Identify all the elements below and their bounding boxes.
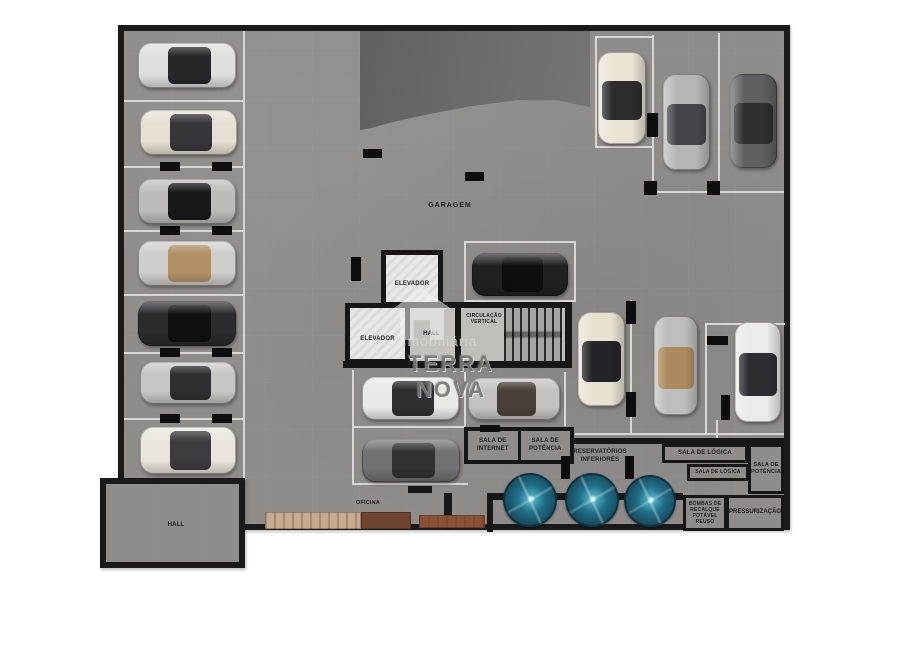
car-cabin — [168, 245, 210, 282]
car-cabin — [168, 47, 210, 84]
parking-line — [124, 100, 243, 102]
parking-line — [575, 433, 784, 435]
structural-column — [647, 113, 658, 137]
cream-car — [598, 52, 646, 144]
structural-column — [212, 348, 232, 357]
cream-car — [578, 312, 625, 406]
sala-de-logica-room-2: SALA DE LÓGICA — [687, 464, 749, 481]
car-cabin — [658, 347, 694, 390]
workbench — [419, 515, 485, 528]
structural-column — [212, 414, 232, 423]
parking-line — [595, 38, 597, 146]
sala-de-potencia-label: SALA DE POTÊNCIA — [529, 438, 562, 453]
parking-line — [464, 372, 466, 426]
structural-column — [212, 226, 232, 235]
workbench — [265, 512, 361, 529]
cream-car — [140, 110, 237, 155]
sala-de-internet-room: SALA DE INTERNET — [468, 431, 518, 460]
black-car — [138, 301, 236, 346]
structural-column — [465, 172, 484, 181]
pressurizacao-room: PRESSURIZAÇÃO — [726, 495, 784, 531]
parking-line — [595, 146, 654, 148]
structural-column — [160, 348, 180, 357]
structural-column — [351, 257, 361, 281]
floor-plan-canvas: GARAGEM HALL CIRCULAÇÃO VERTICAL ELEVADO… — [0, 0, 900, 665]
structural-column — [707, 181, 720, 195]
black-suv — [472, 253, 568, 296]
structural-column — [707, 336, 728, 345]
structural-column — [160, 162, 180, 171]
car-cabin — [582, 341, 621, 381]
sala-de-logica-label: SALA DE LÓGICA — [678, 450, 732, 458]
car-cabin — [667, 104, 706, 145]
structural-column — [160, 226, 180, 235]
parking-line — [352, 370, 354, 428]
parking-line — [124, 294, 243, 296]
silver-car — [663, 74, 710, 170]
car-cabin — [739, 353, 777, 396]
water-tank — [503, 473, 557, 527]
reservatorios-inferiores-label: RESERVATÓRIOS INFERIORES — [558, 449, 642, 464]
convertible-car — [654, 316, 698, 415]
parking-line — [352, 428, 354, 485]
bombas-de-recalque-room: BOMBAS DE RECALQUE POTÁVEL REUSO — [683, 495, 727, 531]
convertible-car — [138, 241, 236, 286]
car-cabin — [168, 183, 210, 220]
water-tank — [624, 475, 676, 527]
elevator-label: ELEVADOR — [395, 281, 430, 289]
structural-column — [212, 162, 232, 171]
circulacao-vertical-label: CIRCULAÇÃO VERTICAL — [463, 313, 505, 326]
car-cabin — [392, 443, 434, 478]
hall-floor: HALL — [408, 308, 455, 361]
hall-annex-label: HALL — [146, 522, 206, 530]
elevator-lower: ELEVADOR — [345, 303, 410, 364]
gray-car — [362, 439, 460, 482]
wall-segment — [408, 486, 432, 493]
structural-column — [626, 392, 636, 417]
car-cabin — [170, 366, 211, 400]
elevator-upper: ELEVADOR — [381, 250, 443, 307]
structural-column — [721, 395, 730, 420]
parking-line — [718, 33, 720, 193]
parking-line — [352, 426, 465, 428]
car-cabin — [734, 103, 773, 143]
pressurizacao-label: PRESSURIZAÇÃO — [729, 509, 781, 517]
structural-column — [626, 301, 636, 324]
sala-de-logica-room-1: SALA DE LÓGICA — [662, 444, 748, 463]
car-cabin — [392, 381, 434, 416]
workbench — [361, 512, 411, 529]
silver-car — [140, 362, 236, 404]
stairwell: CIRCULAÇÃO VERTICAL — [461, 308, 565, 361]
car-cabin — [602, 81, 641, 121]
cream-suv — [140, 427, 236, 474]
garagem-label: GARAGEM — [412, 202, 488, 211]
parking-line — [243, 31, 245, 483]
structural-column — [480, 425, 500, 432]
wall-segment — [487, 493, 493, 532]
sala-de-internet-label: SALA DE INTERNET — [477, 438, 509, 453]
sala-de-potencia-right-room: SALA DE POTÊNCIA — [748, 444, 784, 494]
hall-annex: HALL — [100, 478, 245, 568]
parking-line — [564, 372, 566, 426]
dark-gray-car — [730, 74, 777, 168]
structural-column — [160, 414, 180, 423]
white-car — [735, 322, 781, 422]
silver-car — [468, 378, 560, 420]
car-cabin — [170, 431, 211, 470]
wall-segment — [565, 302, 572, 368]
structural-column — [363, 149, 382, 158]
water-tank — [565, 473, 619, 527]
sala-de-potencia-label: SALA DE POTÊNCIA — [751, 462, 781, 476]
car-cabin — [170, 114, 212, 151]
white-car — [362, 377, 459, 420]
car-cabin — [497, 382, 537, 416]
bombas-label: BOMBAS DE RECALQUE POTÁVEL REUSO — [686, 501, 724, 526]
wall-segment — [455, 302, 461, 367]
elevator-label: ELEVADOR — [360, 336, 395, 344]
structural-column — [644, 181, 657, 195]
oficina-label: OFICINA — [346, 500, 390, 507]
white-car — [138, 43, 236, 88]
parking-line — [352, 483, 468, 485]
silver-black-roof-car — [138, 179, 236, 224]
hall-label: HALL — [423, 331, 440, 339]
stairs-steps — [504, 308, 562, 361]
sala-de-logica-label: SALA DE LÓGICA — [695, 469, 740, 475]
car-cabin — [502, 257, 543, 292]
car-cabin — [168, 305, 210, 342]
parking-line — [595, 36, 652, 38]
